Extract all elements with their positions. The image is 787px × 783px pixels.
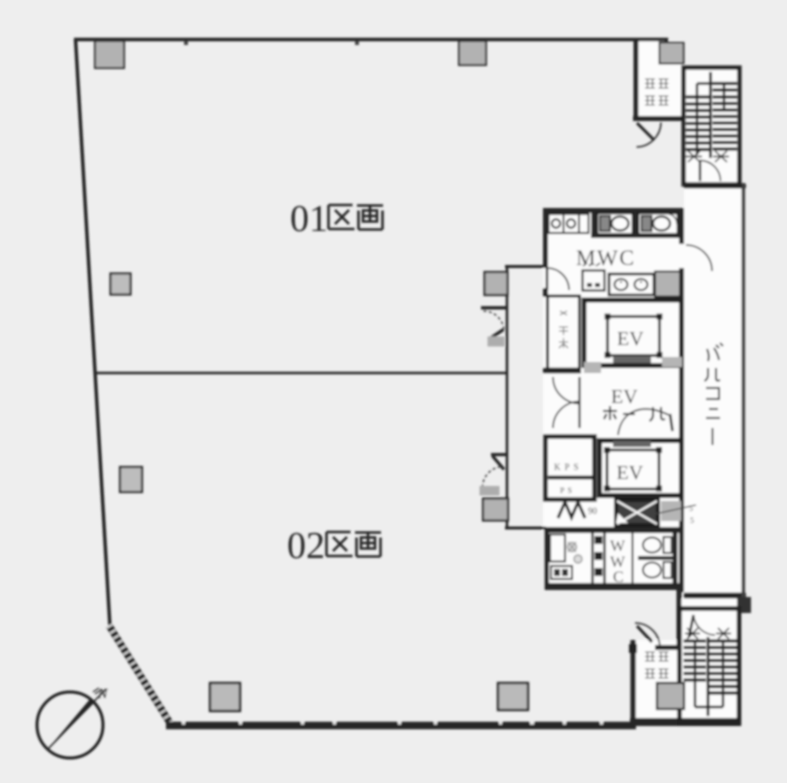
svg-text:EV: EV bbox=[617, 462, 644, 484]
svg-text:90: 90 bbox=[588, 506, 598, 516]
svg-text:EV: EV bbox=[617, 328, 644, 350]
svg-text:W: W bbox=[610, 538, 626, 555]
svg-text:5: 5 bbox=[689, 504, 693, 513]
svg-text:5: 5 bbox=[690, 516, 694, 525]
svg-text:01: 01 bbox=[290, 198, 328, 240]
svg-text:KPS: KPS bbox=[554, 462, 583, 472]
svg-text:C: C bbox=[613, 569, 624, 586]
svg-text:02: 02 bbox=[287, 525, 325, 567]
svg-text:MWC: MWC bbox=[576, 245, 636, 270]
svg-text:N: N bbox=[97, 687, 108, 702]
svg-text:PS: PS bbox=[560, 486, 575, 495]
svg-text:EV: EV bbox=[611, 386, 638, 408]
